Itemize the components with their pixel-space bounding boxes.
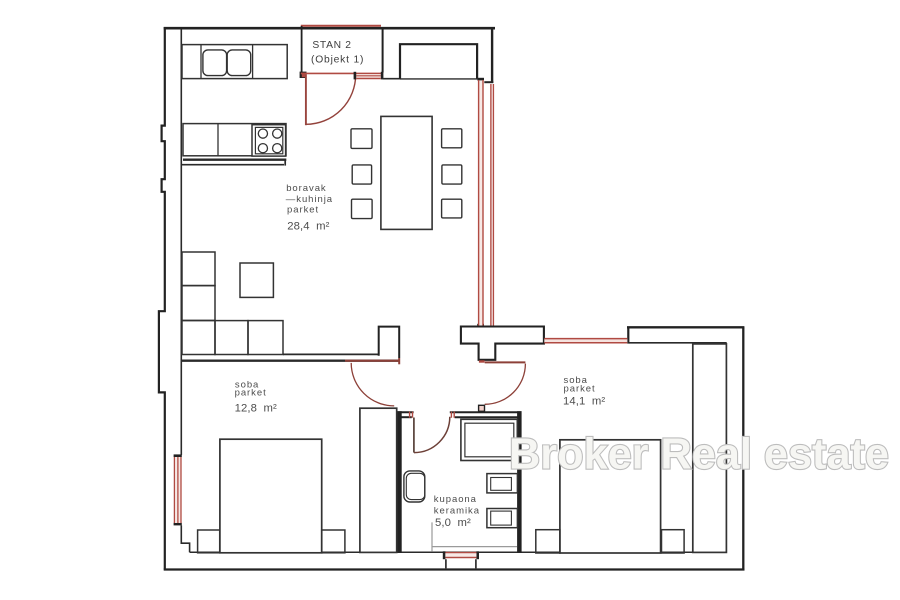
svg-text:28,4 m²: 28,4 m² [287, 221, 329, 233]
svg-text:parket: parket [287, 205, 319, 216]
svg-text:boravak: boravak [286, 183, 326, 194]
svg-text:(Objekt 1): (Objekt 1) [311, 54, 364, 65]
svg-text:parket: parket [564, 383, 596, 394]
svg-text:parket: parket [235, 387, 267, 398]
svg-text:Broker Real estate: Broker Real estate [509, 429, 889, 478]
svg-text:12,8 m²: 12,8 m² [235, 402, 277, 414]
svg-text:STAN 2: STAN 2 [312, 40, 351, 51]
svg-text:5,0 m²: 5,0 m² [435, 517, 471, 529]
svg-text:—kuhinja: —kuhinja [286, 194, 333, 205]
svg-text:keramika: keramika [434, 506, 480, 517]
svg-text:kupaona: kupaona [434, 494, 477, 505]
svg-text:14,1 m²: 14,1 m² [563, 396, 605, 408]
